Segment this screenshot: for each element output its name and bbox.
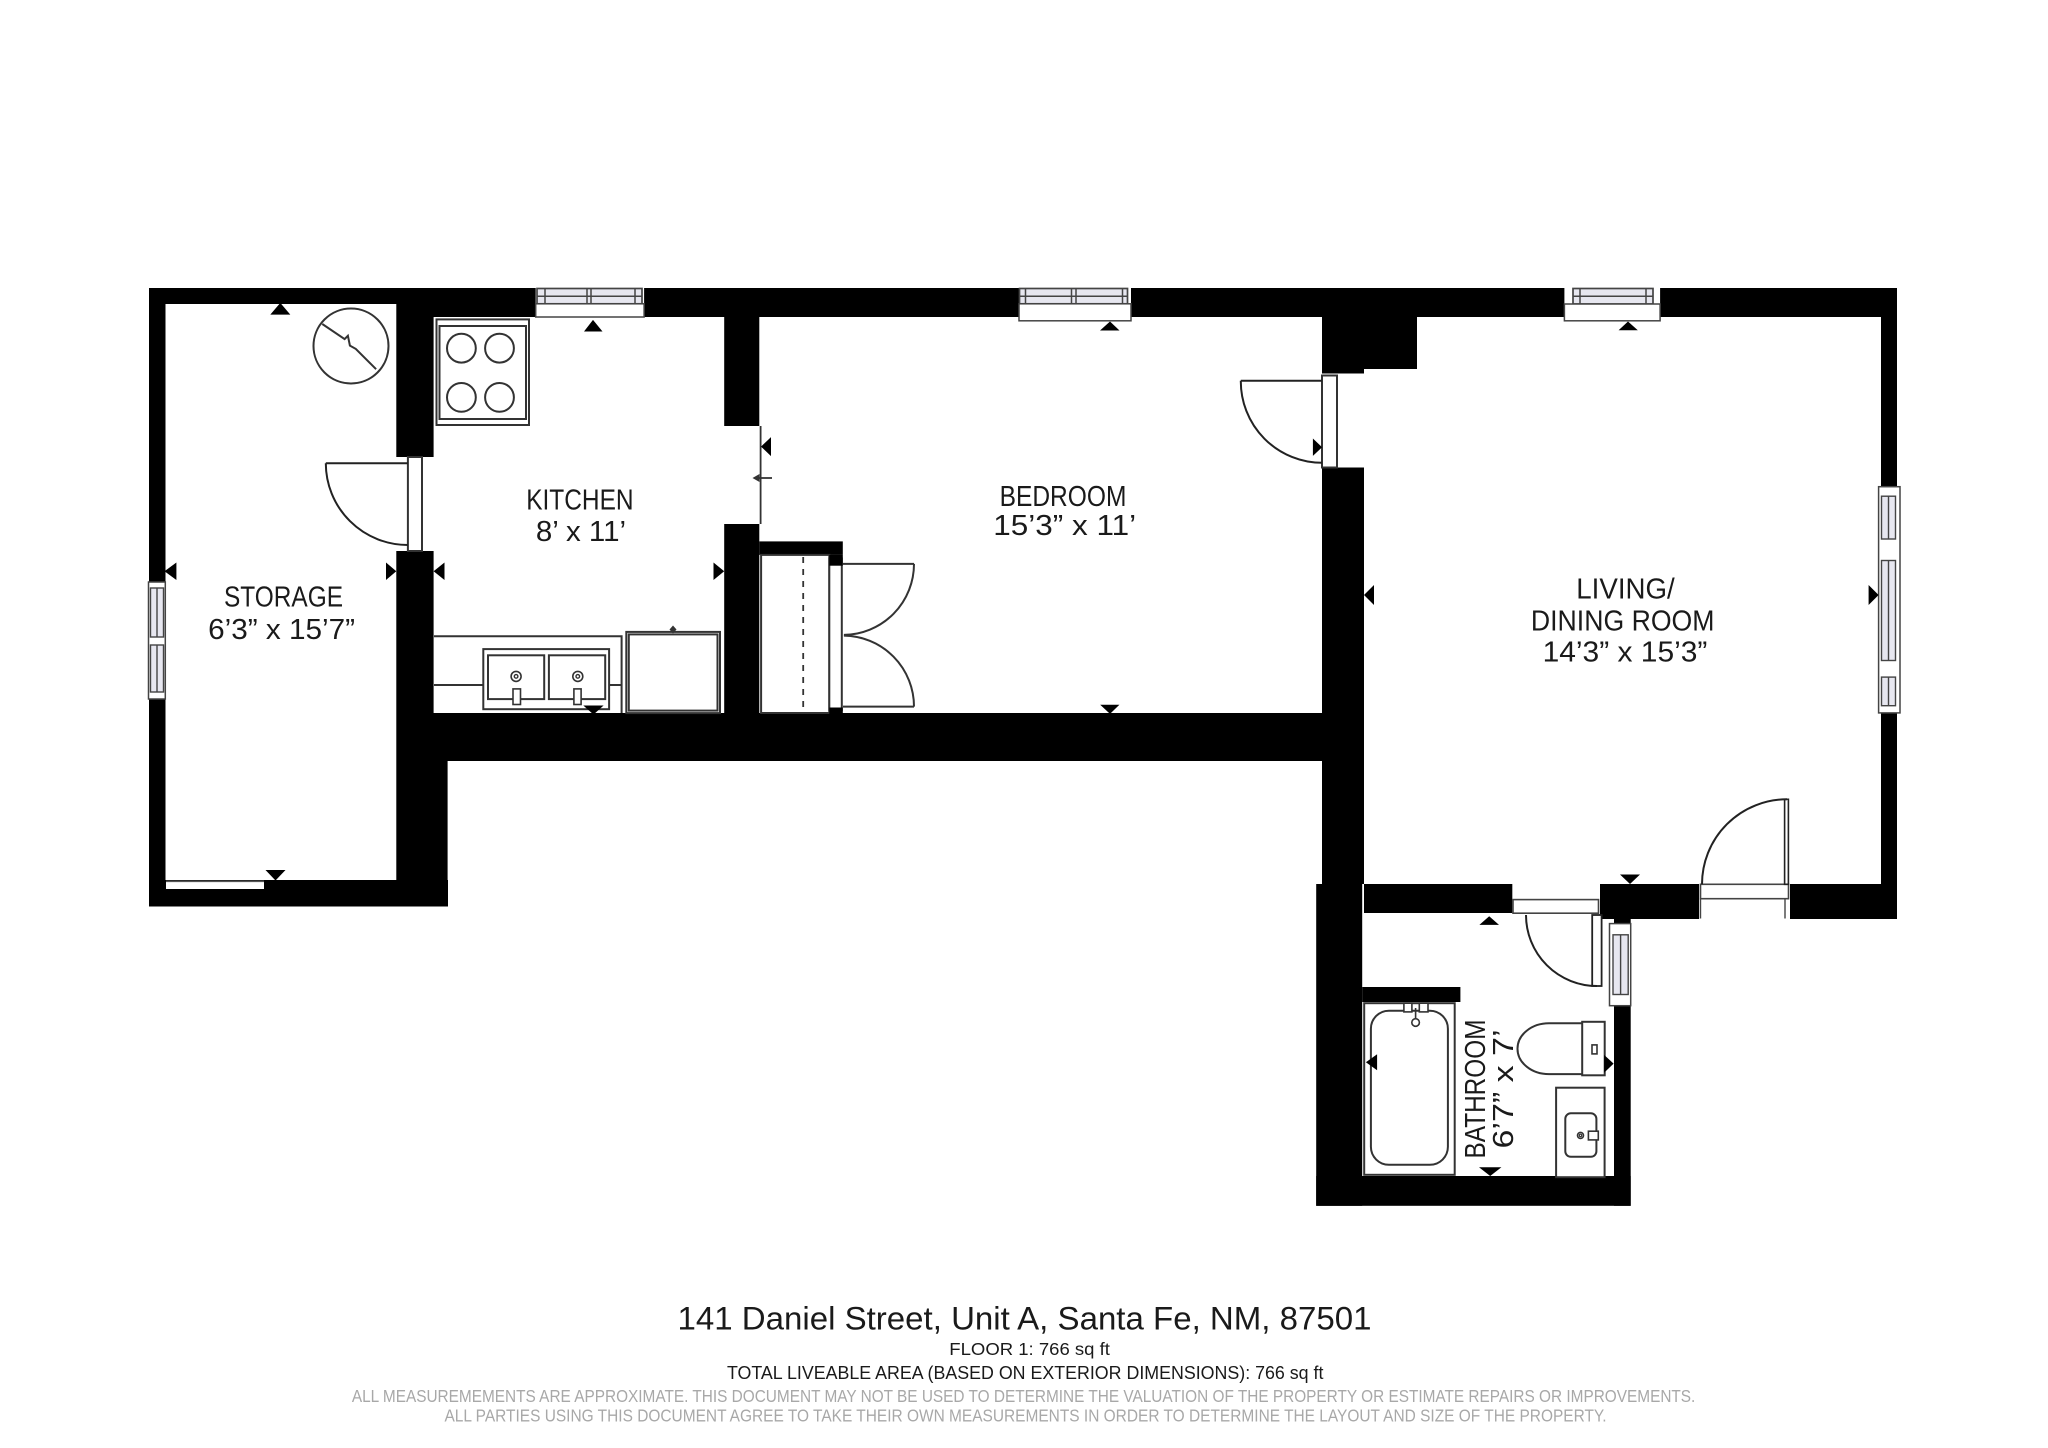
svg-text:6’3” x 15’7”: 6’3” x 15’7”	[208, 614, 355, 646]
svg-text:ALL MEASUREMEMENTS ARE APPROXI: ALL MEASUREMEMENTS ARE APPROXIMATE. THIS…	[352, 1386, 1696, 1406]
svg-text:14’3” x 15’3”: 14’3” x 15’3”	[1543, 637, 1708, 669]
svg-text:KITCHEN: KITCHEN	[526, 485, 633, 517]
svg-text:6’7” x 7’: 6’7” x 7’	[1488, 1030, 1520, 1149]
svg-text:DINING ROOM: DINING ROOM	[1531, 605, 1715, 637]
svg-text:ALL PARTIES USING THIS DOCUMEN: ALL PARTIES USING THIS DOCUMENT AGREE TO…	[444, 1405, 1606, 1425]
svg-text:STORAGE: STORAGE	[224, 581, 343, 613]
svg-text:15’3” x 11’: 15’3” x 11’	[993, 510, 1136, 542]
svg-text:BEDROOM: BEDROOM	[1000, 481, 1127, 513]
svg-text:LIVING/: LIVING/	[1576, 573, 1675, 605]
svg-text:141 Daniel Street, Unit A, San: 141 Daniel Street, Unit A, Santa Fe, NM,…	[678, 1300, 1372, 1337]
svg-text:8’ x 11’: 8’ x 11’	[536, 516, 626, 548]
svg-text:TOTAL LIVEABLE AREA (BASED ON: TOTAL LIVEABLE AREA (BASED ON EXTERIOR D…	[727, 1363, 1324, 1383]
svg-text:FLOOR 1: 766 sq ft: FLOOR 1: 766 sq ft	[949, 1339, 1110, 1359]
